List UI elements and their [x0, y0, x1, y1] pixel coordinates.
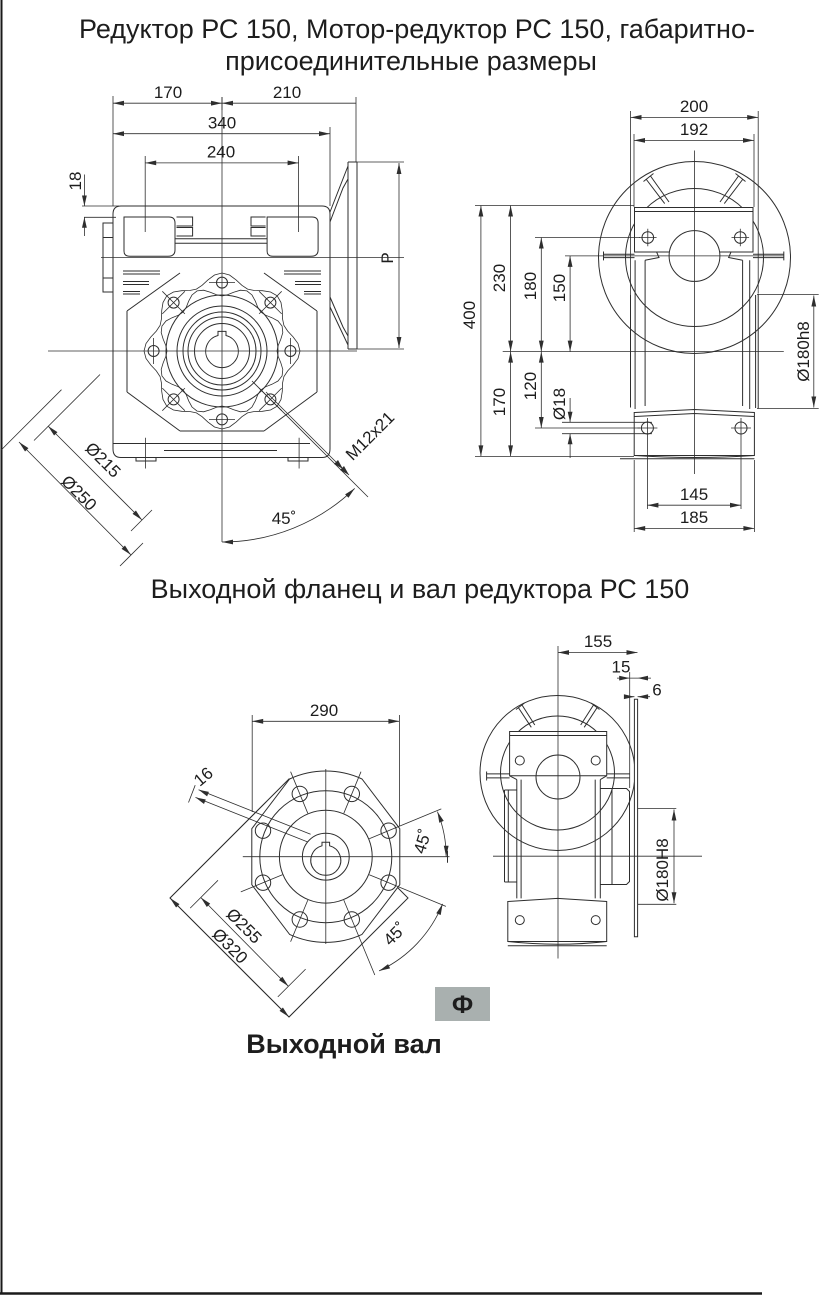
svg-text:230: 230: [490, 264, 509, 292]
svg-text:185: 185: [680, 508, 708, 527]
svg-text:145: 145: [680, 485, 708, 504]
svg-text:Ф: Ф: [452, 991, 473, 1019]
svg-text:180: 180: [521, 272, 540, 300]
svg-text:155: 155: [584, 632, 612, 651]
svg-text:18: 18: [66, 172, 85, 191]
svg-text:15: 15: [612, 658, 631, 677]
svg-text:P: P: [378, 252, 397, 263]
svg-text:340: 340: [208, 114, 236, 133]
svg-text:290: 290: [310, 701, 338, 720]
svg-text:присоединительные размеры: присоединительные размеры: [225, 46, 597, 76]
svg-text:170: 170: [490, 388, 509, 416]
svg-text:210: 210: [273, 83, 301, 102]
svg-text:240: 240: [207, 143, 235, 162]
svg-text:Ø180H8: Ø180H8: [653, 838, 672, 901]
svg-text:200: 200: [680, 97, 708, 116]
svg-text:192: 192: [680, 120, 708, 139]
svg-text:400: 400: [460, 301, 479, 329]
svg-text:45˚: 45˚: [272, 509, 297, 528]
svg-text:Ø180h8: Ø180h8: [794, 321, 813, 382]
svg-text:170: 170: [154, 83, 182, 102]
svg-text:6: 6: [652, 681, 661, 700]
svg-text:Ø18: Ø18: [550, 388, 569, 420]
svg-text:Редуктор РС 150, Мотор-редукто: Редуктор РС 150, Мотор-редуктор РС 150, …: [79, 14, 755, 44]
svg-text:120: 120: [521, 372, 540, 400]
svg-text:150: 150: [550, 274, 569, 302]
svg-text:Выходной вал: Выходной вал: [246, 1029, 442, 1059]
svg-text:Выходной фланец и вал редуктор: Выходной фланец и вал редуктора РС 150: [151, 574, 690, 604]
